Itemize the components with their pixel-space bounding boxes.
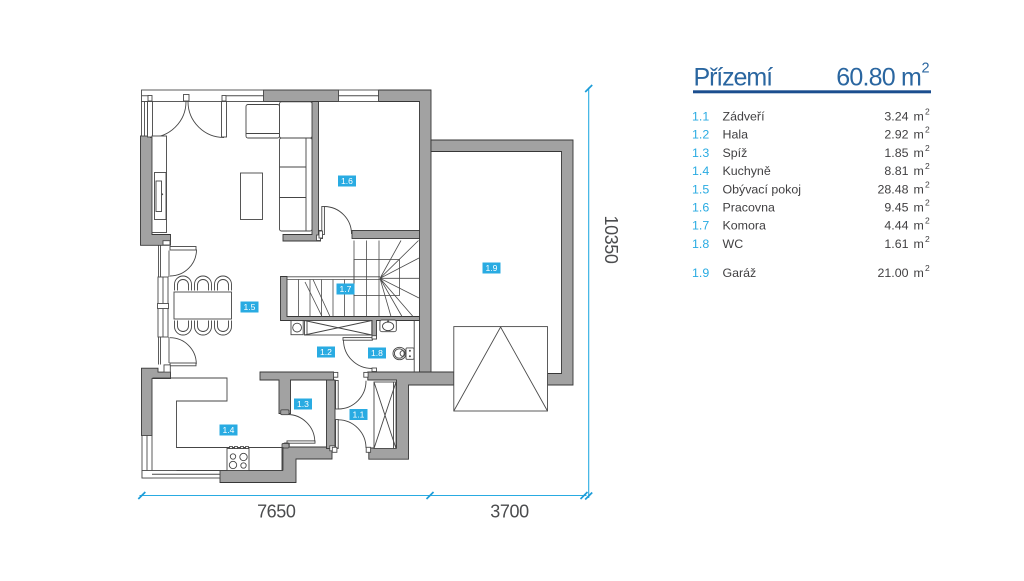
svg-text:2: 2	[925, 198, 930, 208]
svg-text:2: 2	[925, 179, 930, 189]
svg-text:m: m	[914, 266, 924, 280]
svg-text:2: 2	[925, 234, 930, 244]
svg-text:1.8: 1.8	[692, 237, 709, 251]
svg-text:m: m	[914, 128, 924, 142]
svg-text:2: 2	[925, 161, 930, 171]
svg-text:1.1: 1.1	[692, 110, 709, 124]
svg-text:8.81: 8.81	[884, 164, 908, 178]
svg-text:60.80 m: 60.80 m	[836, 64, 921, 92]
svg-text:m: m	[914, 237, 924, 251]
svg-text:Kuchyně: Kuchyně	[723, 164, 771, 178]
svg-text:9.45: 9.45	[884, 201, 908, 215]
svg-text:1.7: 1.7	[692, 219, 709, 233]
svg-text:2.92: 2.92	[884, 128, 908, 142]
svg-text:28.48: 28.48	[877, 182, 908, 196]
svg-text:1.5: 1.5	[692, 182, 709, 196]
svg-text:7650: 7650	[257, 502, 296, 522]
svg-text:m: m	[914, 219, 924, 233]
svg-text:1.61: 1.61	[884, 237, 908, 251]
svg-text:1.6: 1.6	[341, 176, 353, 186]
svg-text:Komora: Komora	[723, 219, 766, 233]
svg-text:Obývací pokoj: Obývací pokoj	[723, 182, 802, 196]
svg-text:1.2: 1.2	[692, 128, 709, 142]
svg-text:1.6: 1.6	[692, 201, 709, 215]
svg-text:m: m	[914, 201, 924, 215]
svg-text:1.85: 1.85	[884, 146, 908, 160]
svg-text:Zádveří: Zádveří	[723, 110, 766, 124]
svg-text:Přízemí: Přízemí	[694, 64, 774, 92]
svg-text:Garáž: Garáž	[723, 266, 757, 280]
svg-text:m: m	[914, 182, 924, 196]
svg-text:2: 2	[922, 61, 930, 77]
svg-text:2: 2	[925, 125, 930, 135]
svg-text:10350: 10350	[601, 215, 621, 263]
svg-text:3.24: 3.24	[884, 110, 908, 124]
svg-text:Hala: Hala	[723, 128, 749, 142]
svg-text:2: 2	[925, 216, 930, 226]
svg-text:1.3: 1.3	[297, 399, 309, 409]
svg-text:m: m	[914, 146, 924, 160]
svg-text:2: 2	[925, 263, 930, 273]
svg-text:1.4: 1.4	[692, 164, 709, 178]
svg-text:1.1: 1.1	[353, 409, 365, 419]
svg-text:1.2: 1.2	[320, 347, 332, 357]
svg-text:1.3: 1.3	[692, 146, 709, 160]
svg-text:1.4: 1.4	[223, 425, 235, 435]
svg-text:1.7: 1.7	[340, 284, 352, 294]
svg-text:2: 2	[925, 143, 930, 153]
svg-text:m: m	[914, 164, 924, 178]
svg-text:Spíž: Spíž	[723, 146, 748, 160]
svg-text:4.44: 4.44	[884, 219, 908, 233]
svg-text:WC: WC	[723, 237, 744, 251]
svg-text:2: 2	[925, 107, 930, 117]
svg-text:m: m	[914, 110, 924, 124]
svg-text:1.9: 1.9	[692, 266, 709, 280]
svg-text:21.00: 21.00	[877, 266, 908, 280]
svg-text:1.5: 1.5	[244, 302, 256, 312]
svg-text:Pracovna: Pracovna	[723, 201, 775, 215]
svg-text:1.8: 1.8	[371, 348, 383, 358]
svg-text:3700: 3700	[490, 502, 529, 522]
svg-text:1.9: 1.9	[486, 263, 498, 273]
